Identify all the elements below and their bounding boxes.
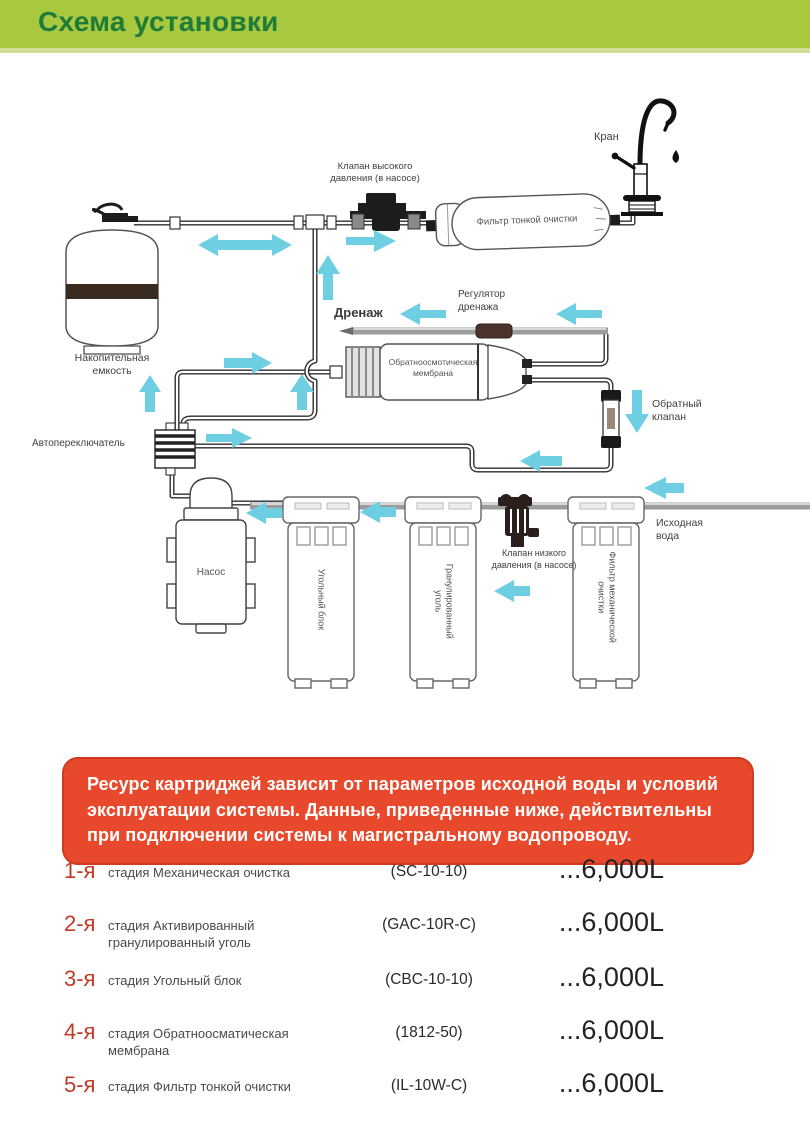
label-drain: Дренаж [334, 305, 383, 322]
stage-number: 3-я [64, 966, 95, 992]
label-low-pressure-valve: Клапан низкого давления (в насосе) [472, 548, 596, 571]
water-drop [673, 150, 680, 163]
arrow-down-checkvalve [625, 390, 649, 433]
stage-number: 1-я [64, 858, 95, 884]
stage-row-1: 1-я стадия Механическая очистка (SC-10-1… [64, 858, 668, 908]
drain-regulator [476, 324, 512, 338]
low-pressure-valve [498, 494, 539, 547]
arrow-left-lowvalve [494, 580, 530, 602]
notice-line: Ресурс картриджей зависит от параметров … [87, 772, 731, 798]
drain-pipe [339, 324, 608, 338]
stage-row-5: 5-я стадия Фильтр тонкой очистки (IL-10W… [64, 1072, 668, 1122]
notice-line: эксплуатации системы. Данные, приведенны… [87, 798, 731, 824]
arrow-right-top [346, 230, 396, 252]
stage-resource: ...6,000L [512, 1015, 664, 1046]
stage-name: стадия Угольный блок [108, 973, 323, 990]
stage-code: (GAC-10R-C) [344, 916, 514, 934]
stage-number: 4-я [64, 1019, 95, 1045]
label-auto-switch: Автопереключатель [32, 438, 156, 451]
stage-code: (CBC-10-10) [344, 971, 514, 989]
arrow-left-drain-2 [556, 303, 602, 325]
check-valve [601, 390, 621, 448]
stage-name: стадия Механическая очистка [108, 865, 323, 882]
faucet [612, 101, 679, 216]
arrow-double-horizontal [198, 234, 292, 256]
stage-code: (SC-10-10) [344, 863, 514, 881]
header-divider [0, 48, 810, 53]
stage-number: 5-я [64, 1072, 95, 1098]
auto-switch [155, 423, 195, 475]
stage-code: (IL-10W-C) [344, 1077, 514, 1095]
stage-name: стадия Фильтр тонкой очистки [108, 1079, 323, 1096]
high-pressure-valve [350, 193, 426, 231]
label-membrane: Обратноосмотическая мембрана [381, 357, 485, 379]
arrow-left-drain-1 [400, 303, 446, 325]
label-filter-granular: Гранулированный уголь [432, 526, 455, 676]
label-filter-mechanical: Фильтр механической очистки [595, 522, 618, 672]
label-check-valve: Обратный клапан [652, 398, 722, 425]
stage-resource: ...6,000L [512, 907, 664, 938]
stage-resource: ...6,000L [512, 854, 664, 885]
tee-fitting [306, 215, 324, 229]
stage-code: (1812-50) [344, 1024, 514, 1042]
notice-line: при подключении системы к магистральному… [87, 823, 731, 849]
filter-housings [283, 497, 644, 688]
label-faucet: Кран [594, 130, 640, 144]
label-pump: Насос [183, 567, 239, 580]
label-filter-carbon-block: Угольный блок [315, 525, 326, 675]
stage-row-4: 4-я стадия Обратноосматическая мембрана … [64, 1019, 668, 1069]
label-high-pressure-valve: Клапан высокого давления (в насосе) [304, 161, 446, 185]
stage-row-2: 2-я стадия Активированный гранулированны… [64, 911, 668, 961]
label-drain-regulator: Регулятор дренажа [458, 289, 544, 315]
stage-name: стадия Обратноосматическая мембрана [108, 1026, 323, 1060]
tank-band [66, 284, 158, 299]
arrow-up-left [139, 375, 161, 412]
arrow-up-mid [316, 255, 340, 300]
stage-name: стадия Активированный гранулированный уг… [108, 918, 323, 952]
stage-resource: ...6,000L [512, 1068, 664, 1099]
storage-tank [66, 204, 158, 354]
stage-row-3: 3-я стадия Угольный блок (CBC-10-10) ...… [64, 966, 668, 1016]
label-storage-tank: Накопительная емкость [50, 352, 174, 379]
label-feed-water: Исходная вода [656, 517, 728, 544]
page-title: Схема установки [38, 6, 279, 38]
notice-box: Ресурс картриджей зависит от параметров … [62, 757, 754, 865]
stage-resource: ...6,000L [512, 962, 664, 993]
arrow-left-feed [644, 477, 684, 499]
stage-number: 2-я [64, 911, 95, 937]
